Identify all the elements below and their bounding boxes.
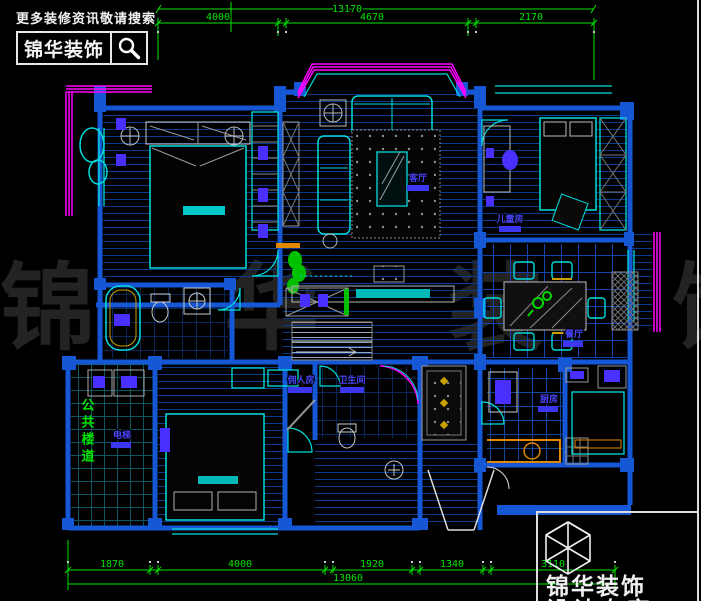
planter	[80, 128, 107, 184]
brand-name: 锦华装饰	[18, 33, 110, 63]
dim-top-seg1: 4000	[206, 12, 230, 23]
dim-bot-seg2: 4000	[228, 559, 252, 570]
label-elevator: 电梯	[113, 429, 131, 441]
dimension-labels-top: 13170 4000 4670 2170	[206, 4, 543, 23]
av-unit	[374, 266, 404, 282]
dim-bot-total: 13060	[333, 573, 363, 584]
dim-bot-seg1: 1870	[100, 559, 124, 570]
entry-door-arc	[487, 467, 509, 489]
label-kitchen: 厨房	[540, 393, 558, 405]
foyer-rug	[422, 366, 466, 440]
label-maid-room: 佣人房	[286, 374, 314, 386]
dim-top-total: 13170	[332, 4, 362, 15]
label-bathroom: 卫生间	[338, 374, 365, 386]
dimension-ticks-top-specks	[157, 31, 595, 33]
pillar	[612, 272, 638, 330]
desk-chair	[502, 150, 518, 170]
logo-block: 锦华装饰 设计专家 WWW.JS-JINHUA.COM	[536, 511, 699, 601]
wall-tv	[160, 428, 170, 452]
bed2	[166, 414, 264, 520]
dimension-ticks-bottom-specks	[67, 561, 616, 563]
label-dining-room: 餐厅	[564, 328, 583, 340]
maid-room-diagonal-wall	[287, 400, 315, 430]
right-balcony-window	[654, 232, 660, 332]
label-public-corridor: 公共楼道	[79, 398, 95, 466]
bed-pillow	[183, 206, 225, 215]
cube-logo-icon	[542, 519, 594, 575]
search-hint-text: 更多装修资讯敬请搜索	[16, 8, 156, 27]
dim-bot-seg3: 1920	[360, 559, 384, 570]
footer-brand: 锦华装饰	[546, 575, 654, 599]
dim-top-seg2: 4670	[360, 12, 384, 23]
tv	[356, 289, 430, 298]
magnifier-icon	[110, 33, 146, 63]
search-banner: 更多装修资讯敬请搜索 锦华装饰	[16, 8, 156, 65]
dim-bot-seg4: 1340	[440, 559, 464, 570]
label-childrens-room: 儿童房	[495, 213, 523, 225]
label-living-room: 客厅	[408, 172, 427, 184]
dim-top-seg3: 2170	[519, 12, 543, 23]
search-box: 锦华装饰	[16, 31, 148, 65]
floor-plan-page: 锦 华 装 饰	[0, 0, 701, 601]
stove	[566, 438, 588, 464]
